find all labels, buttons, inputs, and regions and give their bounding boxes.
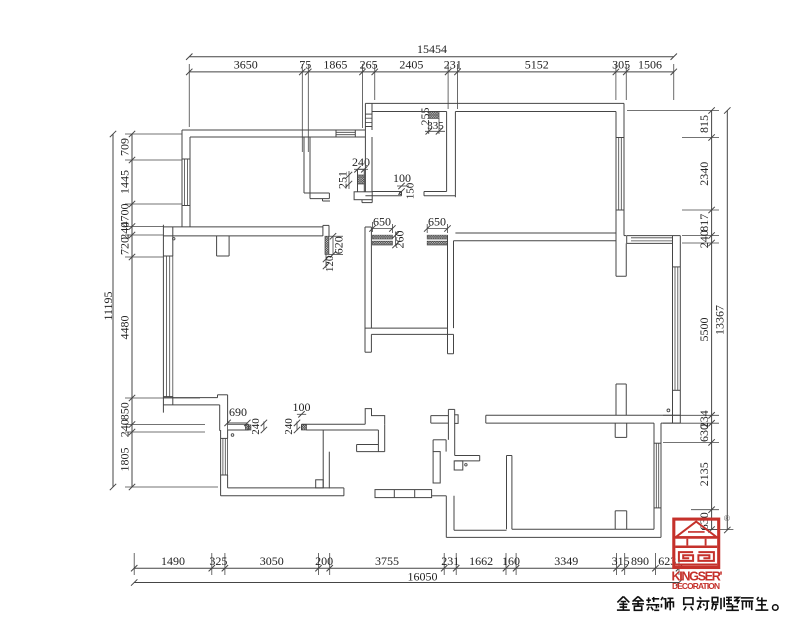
svg-text:240: 240 xyxy=(118,419,132,437)
svg-text:650: 650 xyxy=(428,215,446,229)
svg-text:3349: 3349 xyxy=(554,554,578,568)
svg-text:315: 315 xyxy=(612,554,630,568)
svg-text:DECORATION: DECORATION xyxy=(672,581,720,591)
svg-text:3650: 3650 xyxy=(234,58,258,72)
svg-text:620: 620 xyxy=(331,236,345,254)
svg-text:335: 335 xyxy=(427,120,444,132)
svg-text:®: ® xyxy=(724,514,730,523)
svg-text:690: 690 xyxy=(229,405,247,419)
svg-text:720: 720 xyxy=(118,237,132,255)
svg-text:4480: 4480 xyxy=(118,316,132,340)
svg-text:850: 850 xyxy=(118,402,132,420)
svg-text:2135: 2135 xyxy=(697,462,711,486)
svg-text:240: 240 xyxy=(250,418,262,435)
svg-text:251: 251 xyxy=(336,171,350,189)
svg-text:630: 630 xyxy=(697,424,711,442)
svg-text:16050: 16050 xyxy=(408,569,438,583)
svg-text:150: 150 xyxy=(405,182,417,199)
svg-text:260: 260 xyxy=(393,231,407,249)
svg-text:265: 265 xyxy=(360,58,378,72)
svg-text:231: 231 xyxy=(441,554,459,568)
svg-text:11195: 11195 xyxy=(101,291,115,320)
svg-text:160: 160 xyxy=(502,554,520,568)
svg-text:15454: 15454 xyxy=(417,42,447,56)
svg-text:1805: 1805 xyxy=(118,448,132,472)
svg-text:100: 100 xyxy=(293,400,311,414)
svg-text:120: 120 xyxy=(324,255,336,272)
svg-text:709: 709 xyxy=(118,138,132,156)
svg-text:13367: 13367 xyxy=(713,305,727,335)
svg-text:1490: 1490 xyxy=(161,554,185,568)
svg-text:817: 817 xyxy=(697,214,711,232)
svg-text:3755: 3755 xyxy=(375,554,399,568)
svg-text:75: 75 xyxy=(299,58,311,72)
svg-text:2405: 2405 xyxy=(399,58,423,72)
svg-text:1865: 1865 xyxy=(323,58,347,72)
svg-text:3050: 3050 xyxy=(260,554,284,568)
svg-text:1506: 1506 xyxy=(638,58,662,72)
svg-text:1662: 1662 xyxy=(469,554,493,568)
svg-text:1445: 1445 xyxy=(118,170,132,194)
svg-text:650: 650 xyxy=(373,215,391,229)
svg-text:240: 240 xyxy=(283,418,295,435)
svg-text:200: 200 xyxy=(315,554,333,568)
svg-text:2340: 2340 xyxy=(697,162,711,186)
svg-text:5152: 5152 xyxy=(525,58,549,72)
svg-text:890: 890 xyxy=(631,554,649,568)
svg-text:305: 305 xyxy=(612,58,630,72)
svg-text:231: 231 xyxy=(444,58,462,72)
svg-text:325: 325 xyxy=(209,554,227,568)
svg-text:5500: 5500 xyxy=(697,318,711,342)
svg-text:240: 240 xyxy=(352,155,370,169)
svg-text:240: 240 xyxy=(697,230,711,248)
svg-text:815: 815 xyxy=(697,115,711,133)
